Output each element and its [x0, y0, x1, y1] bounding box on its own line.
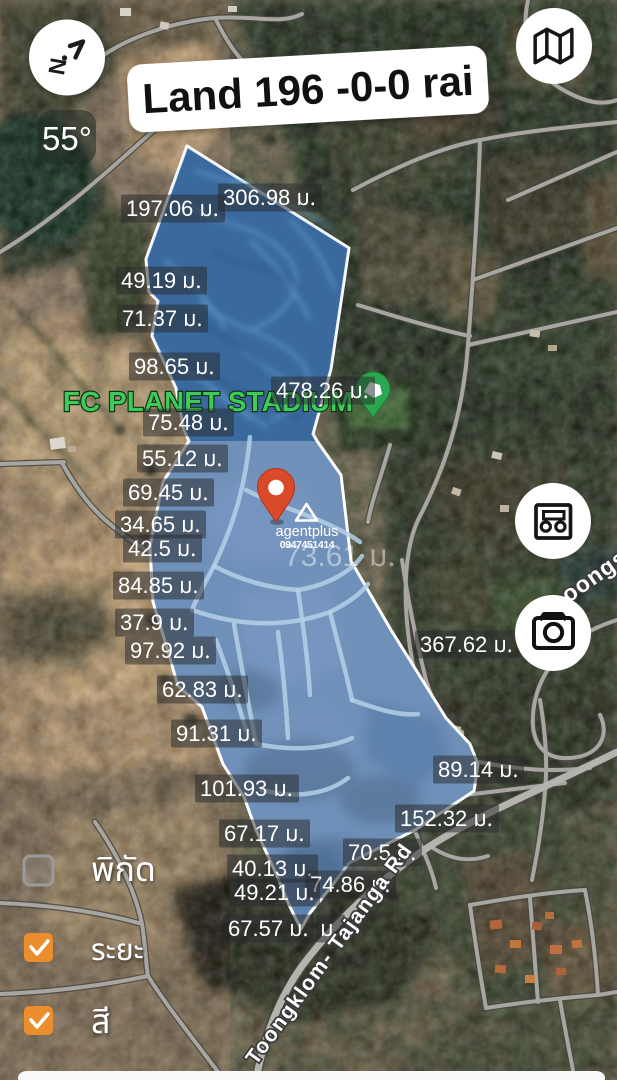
svg-text:367.62: 367.62 [420, 632, 487, 657]
svg-text:69.45: 69.45 [128, 480, 183, 505]
svg-text:84.85: 84.85 [118, 573, 173, 598]
svg-text:agentplus: agentplus [276, 524, 339, 540]
svg-text:97.92: 97.92 [130, 638, 185, 663]
svg-text:67.17: 67.17 [224, 821, 279, 846]
svg-text:40.13: 40.13 [232, 856, 287, 881]
svg-text:55°: 55° [42, 120, 92, 157]
svg-text:89.14: 89.14 [438, 757, 493, 782]
svg-text:67.57: 67.57 [228, 916, 283, 941]
svg-text:62.83: 62.83 [162, 677, 217, 702]
svg-text:98.65: 98.65 [134, 354, 189, 379]
svg-text:91.31: 91.31 [176, 721, 231, 746]
svg-text:75.48: 75.48 [148, 410, 203, 435]
svg-text:306.98: 306.98 [223, 185, 290, 210]
svg-text:49.19: 49.19 [121, 268, 176, 293]
svg-text:478.26: 478.26 [276, 378, 343, 403]
svg-text:101.93: 101.93 [200, 776, 267, 801]
svg-text:55.12: 55.12 [142, 446, 197, 471]
svg-text:37.9: 37.9 [120, 610, 163, 635]
svg-text:197.06: 197.06 [126, 196, 193, 221]
svg-text:152.32: 152.32 [400, 806, 467, 831]
svg-text:49.21: 49.21 [234, 880, 289, 905]
svg-text:34.65: 34.65 [120, 512, 175, 537]
svg-text:0947451414: 0947451414 [280, 539, 335, 551]
svg-text:42.5: 42.5 [128, 536, 171, 561]
svg-text:71.37: 71.37 [122, 306, 177, 331]
